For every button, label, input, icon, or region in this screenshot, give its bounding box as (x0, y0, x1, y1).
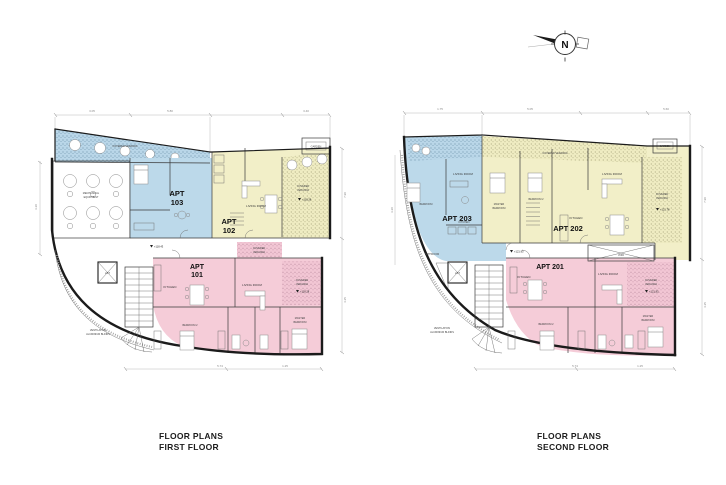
first-floor-plan: 3.05 5.80 3.40 7.90 4.25 5.74 1.25 3.20 (30, 95, 350, 385)
master-bedroom-label: BEDROOM (642, 319, 655, 322)
dim-label: 5.80 (167, 109, 173, 113)
level-label: +118.28 (302, 198, 312, 202)
dim-label: 4.25 (343, 297, 347, 303)
master-bedroom-label: MASTER (494, 203, 505, 206)
bedroom2-label: BEDROOM 2 (528, 198, 544, 201)
level-label: +118.43 (154, 245, 164, 249)
apt-101-label: 101 (191, 272, 203, 279)
title-line: SECOND FLOOR (537, 442, 609, 453)
apt-102-label: 102 (223, 226, 236, 235)
veranda-label: VERANDA (656, 197, 668, 200)
drawing-sheet: 3.05 5.80 3.40 7.90 4.25 5.74 1.25 3.20 (0, 0, 726, 485)
dim-label: 5.60 (663, 107, 669, 111)
dim-label: 1.25 (282, 364, 288, 368)
kitchen-label: KITCHEN (518, 275, 531, 279)
first-floor-title: FLOOR PLANS FIRST FLOOR (159, 431, 223, 453)
covered-veranda-label: COVERED VERANDA (112, 145, 137, 148)
second-floor-plan: 1.75 5.05 5.60 7.90 4.25 5.74 1.25 3.20 … (390, 95, 710, 385)
level-marker-icon (150, 245, 153, 248)
north-label: N (561, 40, 568, 51)
apt-103-label: 103 (171, 198, 184, 207)
staircase-second (472, 265, 503, 353)
dim-label: 7.90 (703, 197, 707, 203)
dim-label: 1.25 (637, 364, 643, 368)
dim-label: 3.20 (34, 204, 38, 210)
covered-label: COVERED (645, 279, 658, 282)
living-room-label: LIVING ROOM (246, 204, 266, 208)
level-marker-icon (510, 250, 513, 253)
vent-label: VENTILATION (90, 329, 106, 332)
second-floor-title: FLOOR PLANS SECOND FLOOR (537, 431, 609, 453)
apt-102-label: APT (222, 217, 237, 226)
bathroom-label: BATHROOM (425, 253, 439, 256)
mechanical-room (53, 161, 130, 238)
master-bedroom-label: BEDROOM (294, 321, 307, 324)
living-room-label: LIVING ROOM (453, 172, 473, 176)
master-bedroom-label: BEDROOM (493, 207, 506, 210)
apt-202-label: APT 202 (553, 224, 583, 233)
level-label: +118.28 (300, 290, 310, 294)
apt-202-veranda-right (642, 157, 682, 243)
title-line: FLOOR PLANS (159, 431, 223, 442)
north-arrow-icon: N (525, 20, 615, 75)
mechanical-equipment-circles (64, 175, 123, 229)
title-line: FLOOR PLANS (537, 431, 609, 442)
apt-101-label: APT (190, 264, 205, 271)
dim-label: 1.75 (437, 107, 443, 111)
dim-label: 7.90 (343, 192, 347, 198)
covered-label: COVERED (296, 279, 309, 282)
dim-label: 3.05 (89, 109, 95, 113)
veranda-label: VERANDA (253, 251, 265, 254)
bedroom2-label: BEDROOM 2 (182, 324, 198, 327)
kitchen-label: KITCHEN (164, 285, 177, 289)
vent-label: VENTILATION (434, 327, 450, 330)
bedroom2-label: BEDROOM 2 (538, 323, 554, 326)
apt-103-label: APT (170, 189, 185, 198)
covered-veranda-label: COVERED VERANDA (542, 152, 567, 155)
master-bedroom-label: MASTER (295, 317, 306, 320)
covered-label: COVERED (253, 247, 266, 250)
living-room-label: LIVING ROOM (242, 283, 262, 287)
lift-first: LIFT (98, 262, 117, 283)
dim-label: 5.05 (527, 107, 533, 111)
veranda-label: VERANDA (645, 283, 657, 286)
dim-label: 3.20 (390, 207, 394, 213)
veranda-label: VERANDA (297, 189, 309, 192)
dim-label: 5.74 (572, 364, 578, 368)
dim-label: 5.74 (217, 364, 223, 368)
lift-label: LIFT (105, 272, 111, 275)
void-label: VOID (618, 254, 624, 257)
vent-label: ALUMINIUM BLINDS (86, 333, 110, 336)
lift-second: LIFT (448, 262, 467, 283)
covered-label: COVERED (297, 185, 310, 188)
level-label: +121.93 (649, 290, 659, 294)
mechanical-label: MECHANICAL (83, 192, 100, 195)
covered-label: COVERED (656, 193, 669, 196)
apt-201-label: APT 201 (536, 264, 564, 271)
living-room-label: LIVING ROOM (598, 272, 618, 276)
veranda-label: VERANDA (296, 283, 308, 286)
vent-label: ALUMINIUM BLINDS (430, 331, 454, 334)
mechanical-label: EQUIPMENT (84, 196, 99, 199)
master-bedroom-label: MASTER (643, 315, 654, 318)
level-label: +121.93 (514, 250, 524, 254)
dim-label: 4.25 (703, 302, 707, 308)
lift-label: LIFT (455, 272, 461, 275)
living-room-label: LIVING ROOM (602, 172, 622, 176)
dim-label: 3.40 (303, 109, 309, 113)
bedroom-label: BEDROOM (420, 203, 433, 206)
kitchen-label: KITCHEN (570, 216, 583, 220)
title-line: FIRST FLOOR (159, 442, 223, 453)
kitchen-label: KITCHEN (459, 221, 470, 224)
level-label: +121.78 (660, 208, 670, 212)
